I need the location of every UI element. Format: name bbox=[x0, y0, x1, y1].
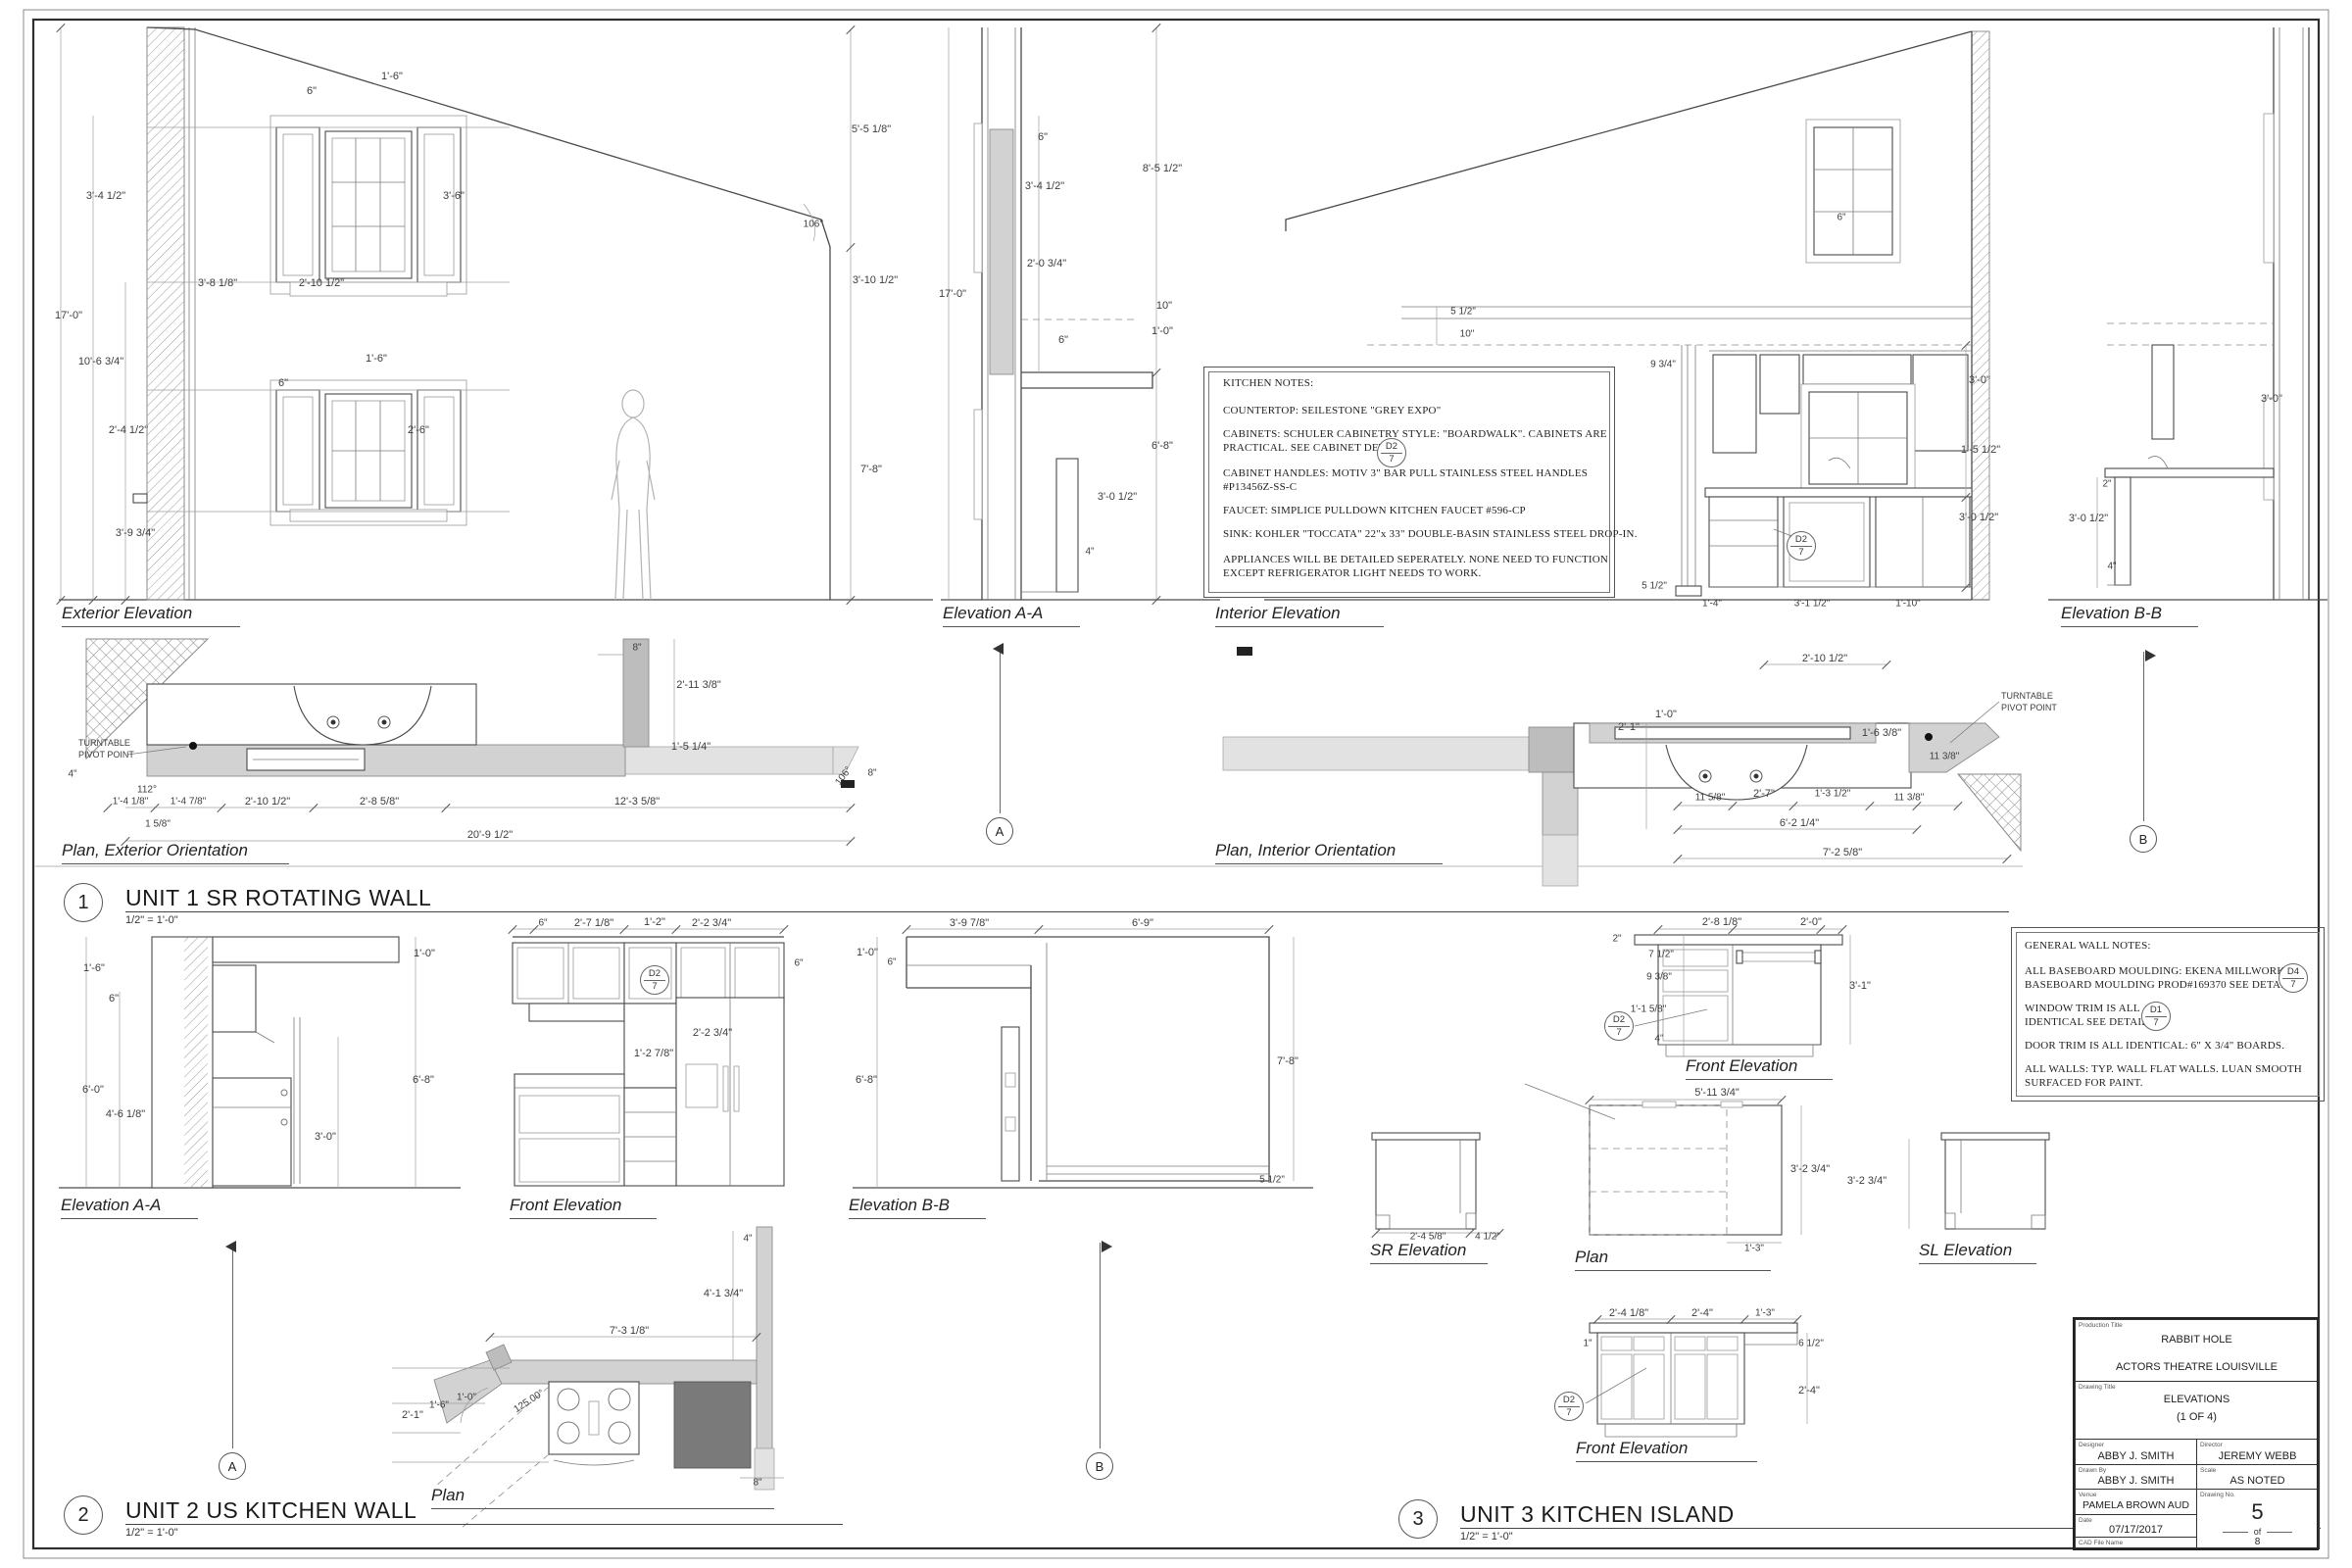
dim-label: 3'-4 1/2" bbox=[1025, 180, 1064, 192]
kitchen-note-line: SINK: KOHLER "TOCCATA" 22"x 33" DOUBLE-B… bbox=[1223, 528, 1638, 540]
dim-tick bbox=[1151, 596, 1160, 605]
dim-label: 2" bbox=[1612, 934, 1621, 945]
dim-label: 8" bbox=[632, 643, 641, 654]
production-title: RABBIT HOLE bbox=[2076, 1334, 2318, 1346]
dim-label: PIVOT POINT bbox=[78, 750, 134, 759]
dim-label: 2'-10 1/2" bbox=[299, 277, 344, 289]
dim-label: 12'-3 5/8" bbox=[614, 796, 660, 808]
dim-tick bbox=[1673, 802, 1682, 810]
cad-file-label: CAD File Name bbox=[2079, 1540, 2123, 1546]
production-venue-title: ACTORS THEATRE LOUISVILLE bbox=[2076, 1361, 2318, 1373]
annotation-overlay: 1'-6"6"3'-4 1/2"3'-6"3'-8 1/8"2'-10 1/2"… bbox=[0, 0, 2352, 1568]
drawing-no-of-label: of bbox=[2254, 1527, 2262, 1537]
dim-label: 2'-10 1/2" bbox=[245, 796, 290, 808]
dim-label: 6" bbox=[307, 85, 317, 97]
dim-label: 2'-4" bbox=[1798, 1385, 1820, 1396]
dim-label: 5 1/2" bbox=[1450, 307, 1476, 318]
detail-bubble: D47 bbox=[2278, 963, 2308, 993]
tb-designer: Designer ABBY J. SMITH bbox=[2075, 1439, 2197, 1465]
dim-label: 1 5/8" bbox=[145, 819, 171, 830]
view-title: Interior Elevation bbox=[1215, 604, 1384, 627]
section-cut-arrow bbox=[987, 643, 1004, 655]
section-cut-line bbox=[1100, 1243, 1101, 1448]
drawn-by-name: ABBY J. SMITH bbox=[2076, 1475, 2196, 1487]
title-block: Production Title RABBIT HOLE ACTORS THEA… bbox=[2073, 1317, 2319, 1550]
dim-tick bbox=[1728, 802, 1737, 810]
dim-tick bbox=[1585, 1096, 1593, 1104]
dim-tick bbox=[846, 25, 855, 34]
section-cut-line bbox=[1000, 645, 1001, 813]
dim-label: 3'-10 1/2" bbox=[853, 274, 898, 286]
dim-label: 10" bbox=[1156, 300, 1172, 312]
view-title: SR Elevation bbox=[1370, 1241, 1488, 1264]
general-note-line: IDENTICAL SEE DETAIL bbox=[2025, 1016, 2148, 1028]
dim-label: 1'-4" bbox=[1702, 599, 1722, 610]
dim-label: 17'-0" bbox=[939, 288, 966, 300]
dim-tick bbox=[217, 804, 225, 812]
dim-label: 6 1/2" bbox=[1798, 1339, 1824, 1349]
section-title: UNIT 3 KITCHEN ISLAND bbox=[1460, 1501, 1735, 1528]
view-title: Plan bbox=[1575, 1248, 1771, 1271]
dim-label: 3'-6" bbox=[443, 190, 465, 202]
venue-value: PAMELA BROWN AUD bbox=[2076, 1499, 2196, 1511]
dim-label: 6" bbox=[794, 958, 803, 969]
dim-label: 2'-4 1/8" bbox=[1609, 1307, 1648, 1319]
drawn-by-label: Drawn By bbox=[2079, 1467, 2106, 1474]
kitchen-note-line: KITCHEN NOTES: bbox=[1223, 377, 1313, 389]
dim-label: 1'-4 7/8" bbox=[171, 797, 207, 808]
dim-label: 2'-11 3/8" bbox=[676, 679, 721, 691]
dim-tick bbox=[1865, 802, 1874, 810]
dim-label: TURNTABLE bbox=[78, 738, 130, 748]
dim-label: 9 3/4" bbox=[1650, 360, 1676, 370]
view-title: Front Elevation bbox=[510, 1196, 657, 1219]
dim-label: 3'-0 1/2" bbox=[1959, 512, 1998, 523]
dim-label: TURNTABLE bbox=[2001, 691, 2053, 701]
dim-tick bbox=[56, 24, 65, 32]
tb-cad-file: CAD File Name bbox=[2075, 1537, 2197, 1548]
dim-tick bbox=[779, 925, 788, 934]
detail-bubble: D27 bbox=[1787, 531, 1816, 561]
dim-label: 4" bbox=[743, 1234, 752, 1245]
dim-label: 3'-2 3/4" bbox=[1790, 1163, 1830, 1175]
dim-tick bbox=[1673, 825, 1682, 834]
view-title: Front Elevation bbox=[1576, 1439, 1757, 1462]
dim-label: 4" bbox=[1085, 547, 1094, 558]
designer-name: ABBY J. SMITH bbox=[2076, 1450, 2196, 1462]
section-title: UNIT 2 US KITCHEN WALL bbox=[125, 1497, 416, 1524]
dim-label: 6'-2 1/4" bbox=[1780, 817, 1819, 829]
date-label: Date bbox=[2079, 1517, 2092, 1524]
dim-tick bbox=[752, 1333, 760, 1342]
drawing-total-value: 8 bbox=[2197, 1537, 2318, 1547]
dim-tick bbox=[619, 925, 628, 934]
dim-label: 1'-0" bbox=[1655, 709, 1677, 720]
view-title: Exterior Elevation bbox=[62, 604, 240, 627]
dim-tick bbox=[2002, 855, 2011, 863]
dim-label: PIVOT POINT bbox=[2001, 703, 2057, 712]
dim-tick bbox=[1739, 1315, 1748, 1324]
dim-label: 3'-1 1/2" bbox=[1794, 599, 1831, 610]
dim-tick bbox=[1792, 1315, 1801, 1324]
dim-label: 1'-5 1/4" bbox=[671, 741, 710, 753]
dim-label: 3'-0 1/2" bbox=[2069, 513, 2108, 524]
dim-tick bbox=[1151, 368, 1160, 377]
dim-label: 6" bbox=[278, 377, 288, 389]
dim-label: 1" bbox=[1583, 1339, 1592, 1349]
dim-label: 3'-9 7/8" bbox=[950, 917, 989, 929]
dim-label: 2'-2 3/4" bbox=[693, 1027, 732, 1039]
dim-label: 1'-0" bbox=[414, 948, 435, 959]
dim-tick bbox=[1777, 1096, 1786, 1104]
section-cut-marker: B bbox=[2130, 825, 2157, 853]
dim-label: 1'-6" bbox=[83, 962, 105, 974]
dim-label: 11 3/8" bbox=[1930, 752, 1960, 762]
dim-label: 6'-8" bbox=[413, 1074, 434, 1086]
dim-label: 5'-5 1/8" bbox=[852, 123, 891, 135]
view-title: SL Elevation bbox=[1919, 1241, 2036, 1264]
dim-label: 7'-8" bbox=[1277, 1055, 1298, 1067]
dim-tick bbox=[1034, 925, 1043, 934]
dim-label: 7'-2 5/8" bbox=[1823, 847, 1862, 858]
section-scale: 1/2" = 1'-0" bbox=[1460, 1531, 1513, 1543]
dim-label: 1'-10" bbox=[1895, 599, 1920, 610]
tb-director: Director JEREMY WEBB bbox=[2196, 1439, 2319, 1465]
view-title: Plan, Exterior Orientation bbox=[62, 841, 289, 864]
dim-label: 6" bbox=[1038, 131, 1048, 143]
kitchen-note-line: COUNTERTOP: SEILESTONE "GREY EXPO" bbox=[1223, 405, 1441, 416]
director-label: Director bbox=[2200, 1442, 2223, 1448]
dim-label: 3'-0" bbox=[315, 1131, 336, 1143]
dim-tick bbox=[1666, 1315, 1675, 1324]
dim-label: 10'-6 3/4" bbox=[78, 356, 123, 367]
view-title: Plan bbox=[431, 1486, 774, 1509]
dim-tick bbox=[508, 925, 516, 934]
dim-tick bbox=[671, 925, 680, 934]
dim-label: 7'-3 1/8" bbox=[610, 1325, 649, 1337]
section-number: 3 bbox=[1398, 1499, 1438, 1539]
kitchen-note-line: APPLIANCES WILL BE DETAILED SEPERATELY. … bbox=[1223, 554, 1608, 565]
dim-tick bbox=[1673, 855, 1682, 863]
general-note-line: GENERAL WALL NOTES: bbox=[2025, 940, 2151, 952]
general-note-line: BASEBOARD MOULDING PROD#169370 SEE DETAI… bbox=[2025, 979, 2291, 991]
section-cut-line bbox=[2143, 652, 2144, 821]
dim-tick bbox=[1264, 925, 1273, 934]
tb-production: Production Title RABBIT HOLE ACTORS THEA… bbox=[2075, 1319, 2319, 1382]
dim-tick bbox=[1961, 583, 1970, 592]
dim-tick bbox=[1592, 1315, 1601, 1324]
date-value: 07/17/2017 bbox=[2076, 1524, 2196, 1536]
dim-label: 3'-9 3/4" bbox=[116, 527, 155, 539]
general-note-line: SURFACED FOR PAINT. bbox=[2025, 1077, 2143, 1089]
section-cut-arrow bbox=[220, 1241, 236, 1252]
dim-tick bbox=[1653, 925, 1662, 934]
dim-label: 6" bbox=[1058, 334, 1068, 346]
view-title: Elevation A-A bbox=[943, 604, 1080, 627]
dim-label: 4" bbox=[68, 769, 76, 780]
dim-label: 2'-4" bbox=[1691, 1307, 1713, 1319]
section-cut-arrow bbox=[2145, 650, 2162, 661]
drafting-sheet: .ln{stroke:#4a4a4a;stroke-width:1.3;fill… bbox=[0, 0, 2352, 1568]
dim-label: 2'-2 3/4" bbox=[692, 917, 731, 929]
kitchen-note-line: #P13456Z-SS-C bbox=[1223, 481, 1297, 493]
director-name: JEREMY WEBB bbox=[2197, 1450, 2318, 1462]
kitchen-note-line: CABINET HANDLES: MOTIV 3" BAR PULL STAIN… bbox=[1223, 467, 1588, 479]
dim-tick bbox=[1912, 825, 1921, 834]
view-title: Front Elevation bbox=[1686, 1056, 1833, 1080]
dim-label: 6" bbox=[538, 918, 547, 929]
tb-drawing-title: Drawing Title ELEVATIONS (1 OF 4) bbox=[2075, 1381, 2319, 1440]
drawing-no-value: 5 bbox=[2197, 1499, 2318, 1525]
dim-label: 2'-8 5/8" bbox=[360, 796, 399, 808]
section-cut-line bbox=[232, 1243, 233, 1448]
scale-label: Scale bbox=[2200, 1467, 2216, 1474]
dim-label: 6'-8" bbox=[856, 1074, 877, 1086]
dim-label: 20'-9 1/2" bbox=[467, 829, 513, 841]
dim-tick bbox=[1961, 341, 1970, 350]
section-cut-marker: A bbox=[219, 1452, 246, 1480]
venue-label: Venue bbox=[2079, 1492, 2096, 1498]
dim-tick bbox=[529, 925, 538, 934]
view-title: Elevation B-B bbox=[849, 1196, 986, 1219]
production-title-label: Production Title bbox=[2079, 1322, 2123, 1329]
dim-label: 112° bbox=[137, 785, 157, 796]
dim-label: 2'-0 3/4" bbox=[1027, 258, 1066, 269]
dim-tick bbox=[1151, 24, 1160, 32]
dim-label: 4'-6 1/8" bbox=[106, 1108, 145, 1120]
dim-label: 1'-1 5/8" bbox=[1631, 1004, 1667, 1015]
dim-tick bbox=[1837, 925, 1846, 934]
drawing-title: ELEVATIONS bbox=[2076, 1394, 2318, 1405]
detail-bubble: D17 bbox=[2141, 1002, 2171, 1031]
dim-tick bbox=[1788, 802, 1797, 810]
scale-value: AS NOTED bbox=[2197, 1475, 2318, 1487]
dim-label: 6" bbox=[1837, 213, 1845, 223]
dim-label: 11 5/8" bbox=[1695, 793, 1726, 804]
dim-label: 2'-1" bbox=[402, 1409, 423, 1421]
dim-tick bbox=[846, 243, 855, 252]
dim-tick bbox=[902, 925, 910, 934]
tb-venue: Venue PAMELA BROWN AUD bbox=[2075, 1489, 2197, 1515]
dim-label: 6" bbox=[887, 957, 896, 968]
dim-label: 1'-0" bbox=[1151, 325, 1173, 337]
dim-label: 8" bbox=[867, 768, 876, 779]
section-scale: 1/2" = 1'-0" bbox=[125, 914, 178, 926]
general-note-line: ALL WALLS: TYP. WALL FLAT WALLS. LUAN SM… bbox=[2025, 1063, 2302, 1075]
tb-date: Date 07/17/2017 bbox=[2075, 1514, 2197, 1538]
dim-label: 4" bbox=[1654, 1034, 1663, 1045]
dim-label: 2'-7" bbox=[1753, 788, 1775, 800]
tb-drawn-by: Drawn By ABBY J. SMITH bbox=[2075, 1464, 2197, 1490]
kitchen-note-line: FAUCET: SIMPLICE PULLDOWN KITCHEN FAUCET… bbox=[1223, 505, 1526, 516]
dim-label: 6" bbox=[109, 993, 119, 1004]
dim-label: 1'-6 3/8" bbox=[1862, 727, 1901, 739]
dim-label: 125.00° bbox=[512, 1388, 546, 1415]
dim-tick bbox=[485, 1333, 494, 1342]
dim-label: 6'-9" bbox=[1132, 917, 1153, 929]
dim-label: 6'-0" bbox=[82, 1084, 104, 1096]
dim-tick bbox=[846, 596, 855, 605]
section-underline bbox=[125, 911, 2009, 912]
dim-label: 9 3/8" bbox=[1646, 972, 1672, 983]
dim-label: 1'-6" bbox=[366, 353, 387, 365]
view-title: Elevation B-B bbox=[2061, 604, 2198, 627]
section-cut-marker: B bbox=[1086, 1452, 1113, 1480]
dim-label: 5 1/2" bbox=[1259, 1175, 1285, 1186]
section-underline bbox=[125, 1524, 843, 1525]
drawing-title-label: Drawing Title bbox=[2079, 1384, 2116, 1391]
kitchen-note-line: CABINETS: SCHULER CABINETRY STYLE: "BOAR… bbox=[1223, 428, 1607, 440]
dim-label: 1'-6" bbox=[429, 1400, 449, 1411]
kitchen-note-line: EXCEPT REFRIGERATOR LIGHT NEEDS TO WORK. bbox=[1223, 567, 1481, 579]
dim-label: 1'-5 1/2" bbox=[1961, 444, 2000, 456]
section-title: UNIT 1 SR ROTATING WALL bbox=[125, 885, 431, 911]
detail-bubble: D27 bbox=[1604, 1011, 1634, 1041]
dim-label: 2'-0" bbox=[1800, 916, 1822, 928]
dim-label: 17'-0" bbox=[55, 310, 82, 321]
dim-label: 3'-0" bbox=[2261, 393, 2282, 405]
dim-label: 7 1/2" bbox=[1648, 950, 1674, 960]
dim-label: 1'-2" bbox=[644, 916, 665, 928]
dim-label: 3'-0 1/2" bbox=[1098, 491, 1137, 503]
designer-label: Designer bbox=[2079, 1442, 2104, 1448]
section-cut-marker: A bbox=[986, 817, 1013, 845]
dim-label: 2'-4 1/2" bbox=[109, 424, 148, 436]
detail-bubble: D27 bbox=[1377, 438, 1406, 467]
dim-tick bbox=[846, 837, 855, 846]
dim-label: 7'-8" bbox=[860, 464, 882, 475]
detail-bubble: D27 bbox=[640, 965, 669, 995]
dim-label: 1'-3" bbox=[1755, 1308, 1775, 1319]
section-number: 2 bbox=[64, 1495, 103, 1535]
dim-label: 4" bbox=[2107, 562, 2116, 572]
dim-tick bbox=[1465, 1229, 1474, 1238]
dim-tick bbox=[103, 804, 112, 812]
dim-label: 4'-1 3/4" bbox=[704, 1288, 743, 1299]
dim-label: 10" bbox=[1460, 329, 1475, 340]
dim-label: 1'-3 1/2" bbox=[1815, 789, 1851, 800]
dim-label: 1'-0" bbox=[457, 1393, 476, 1403]
dim-label: 2" bbox=[2102, 479, 2111, 490]
dim-tick bbox=[441, 804, 450, 812]
dim-tick bbox=[846, 804, 855, 812]
drawing-subtitle: (1 OF 4) bbox=[2076, 1411, 2318, 1423]
dim-label: 6'-8" bbox=[1151, 440, 1173, 452]
dim-label: 1'-6" bbox=[381, 71, 403, 82]
dim-tick bbox=[1961, 493, 1970, 502]
tb-scale: Scale AS NOTED bbox=[2196, 1464, 2319, 1490]
dim-label: 2'-1" bbox=[1618, 721, 1640, 733]
view-title: Plan, Interior Orientation bbox=[1215, 841, 1443, 864]
view-title: Elevation A-A bbox=[61, 1196, 198, 1219]
dim-label: 3'-0" bbox=[1969, 374, 1990, 386]
dim-tick bbox=[1371, 1229, 1380, 1238]
dim-label: 2'-6" bbox=[408, 424, 429, 436]
section-cut-arrow bbox=[1102, 1241, 1118, 1252]
detail-bubble: D27 bbox=[1554, 1392, 1584, 1421]
dim-label: 1'-4 1/8" bbox=[113, 797, 149, 808]
dim-label: 3'-1" bbox=[1849, 980, 1871, 992]
tb-drawing-no: Drawing No. 5 of 8 bbox=[2196, 1489, 2319, 1548]
dim-tick bbox=[1882, 661, 1890, 669]
dim-tick bbox=[1953, 802, 1962, 810]
dim-label: 3'-2 3/4" bbox=[1847, 1175, 1886, 1187]
dim-tick bbox=[309, 804, 318, 812]
drawing-no-label: Drawing No. bbox=[2200, 1492, 2235, 1498]
section-number: 1 bbox=[64, 883, 103, 922]
dim-label: 3'-4 1/2" bbox=[86, 190, 125, 202]
dim-label: 106° bbox=[804, 220, 824, 230]
dim-label: 1'-0" bbox=[857, 947, 878, 958]
dim-label: 2'-7 1/8" bbox=[574, 917, 613, 929]
dim-tick bbox=[150, 804, 159, 812]
dim-label: 3'-8 1/8" bbox=[198, 277, 237, 289]
dim-label: 106° bbox=[833, 764, 854, 787]
dim-label: 8'-5 1/2" bbox=[1143, 163, 1182, 174]
dim-label: 5 1/2" bbox=[1641, 581, 1667, 592]
dim-tick bbox=[1759, 661, 1768, 669]
section-scale: 1/2" = 1'-0" bbox=[125, 1527, 178, 1539]
dim-label: 2'-10 1/2" bbox=[1802, 653, 1847, 664]
general-note-line: WINDOW TRIM IS ALL bbox=[2025, 1003, 2140, 1014]
general-note-line: ALL BASEBOARD MOULDING: EKENA MILLWORK bbox=[2025, 965, 2284, 977]
dim-label: 5'-11 3/4" bbox=[1694, 1087, 1739, 1099]
general-note-line: DOOR TRIM IS ALL IDENTICAL: 6" X 3/4" BO… bbox=[2025, 1040, 2284, 1052]
dim-label: 1'-2 7/8" bbox=[634, 1048, 673, 1059]
